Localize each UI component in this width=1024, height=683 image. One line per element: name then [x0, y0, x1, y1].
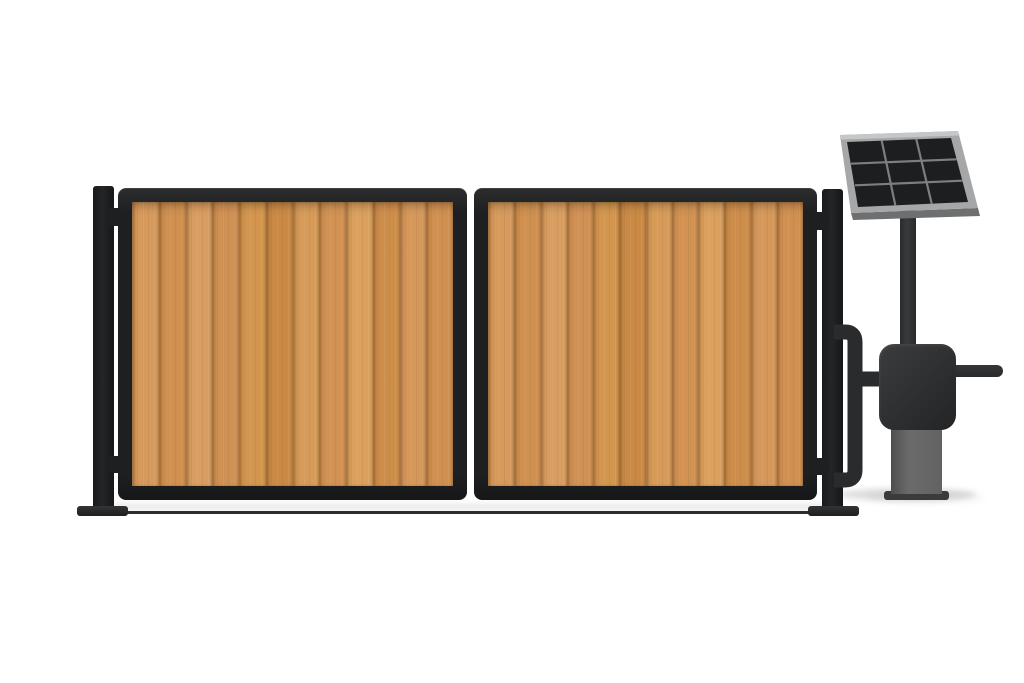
wood-plank [672, 202, 698, 486]
wood-plank [132, 202, 159, 486]
wood-plank [541, 202, 567, 486]
wood-plank [212, 202, 239, 486]
solar-panel-frame [840, 131, 978, 213]
wood-plank [698, 202, 724, 486]
wood-plank [293, 202, 320, 486]
wood-plank [567, 202, 593, 486]
gate-leaf-right [474, 188, 817, 500]
wood-plank [514, 202, 540, 486]
wood-plank [593, 202, 619, 486]
wood-plank [777, 202, 803, 486]
wood-plank [186, 202, 213, 486]
left-post-base-plate [77, 506, 128, 516]
hinge-right-bottom [813, 458, 829, 475]
gate-render-scene [0, 0, 1024, 683]
wood-plank [346, 202, 373, 486]
gate-leaf-left [118, 188, 467, 500]
wood-plank [751, 202, 777, 486]
gate-shadow [112, 504, 834, 510]
wood-panel-right [488, 202, 803, 486]
wood-plank [373, 202, 400, 486]
ground-line [80, 511, 858, 514]
wood-plank [239, 202, 266, 486]
solar-panel-pole [900, 210, 916, 350]
motor-pedestal [891, 428, 942, 494]
wood-panel-left [132, 202, 453, 486]
hinge-left-bottom [107, 456, 123, 473]
wood-plank [400, 202, 427, 486]
right-post-base-plate [808, 506, 859, 516]
wood-plank [159, 202, 186, 486]
hinge-right-top [813, 212, 829, 230]
hinge-left-top [107, 208, 123, 226]
wood-plank [319, 202, 346, 486]
wood-plank [426, 202, 453, 486]
wood-plank [724, 202, 750, 486]
solar-panel-frame-highlight [840, 131, 960, 140]
solar-panel-cells [847, 138, 968, 207]
wood-plank [619, 202, 645, 486]
gate-opener-arm [950, 365, 1003, 377]
wood-plank [646, 202, 672, 486]
solar-panel-grid [851, 139, 962, 205]
wood-plank [266, 202, 293, 486]
wood-plank [488, 202, 514, 486]
gate-motor-box [879, 344, 956, 430]
